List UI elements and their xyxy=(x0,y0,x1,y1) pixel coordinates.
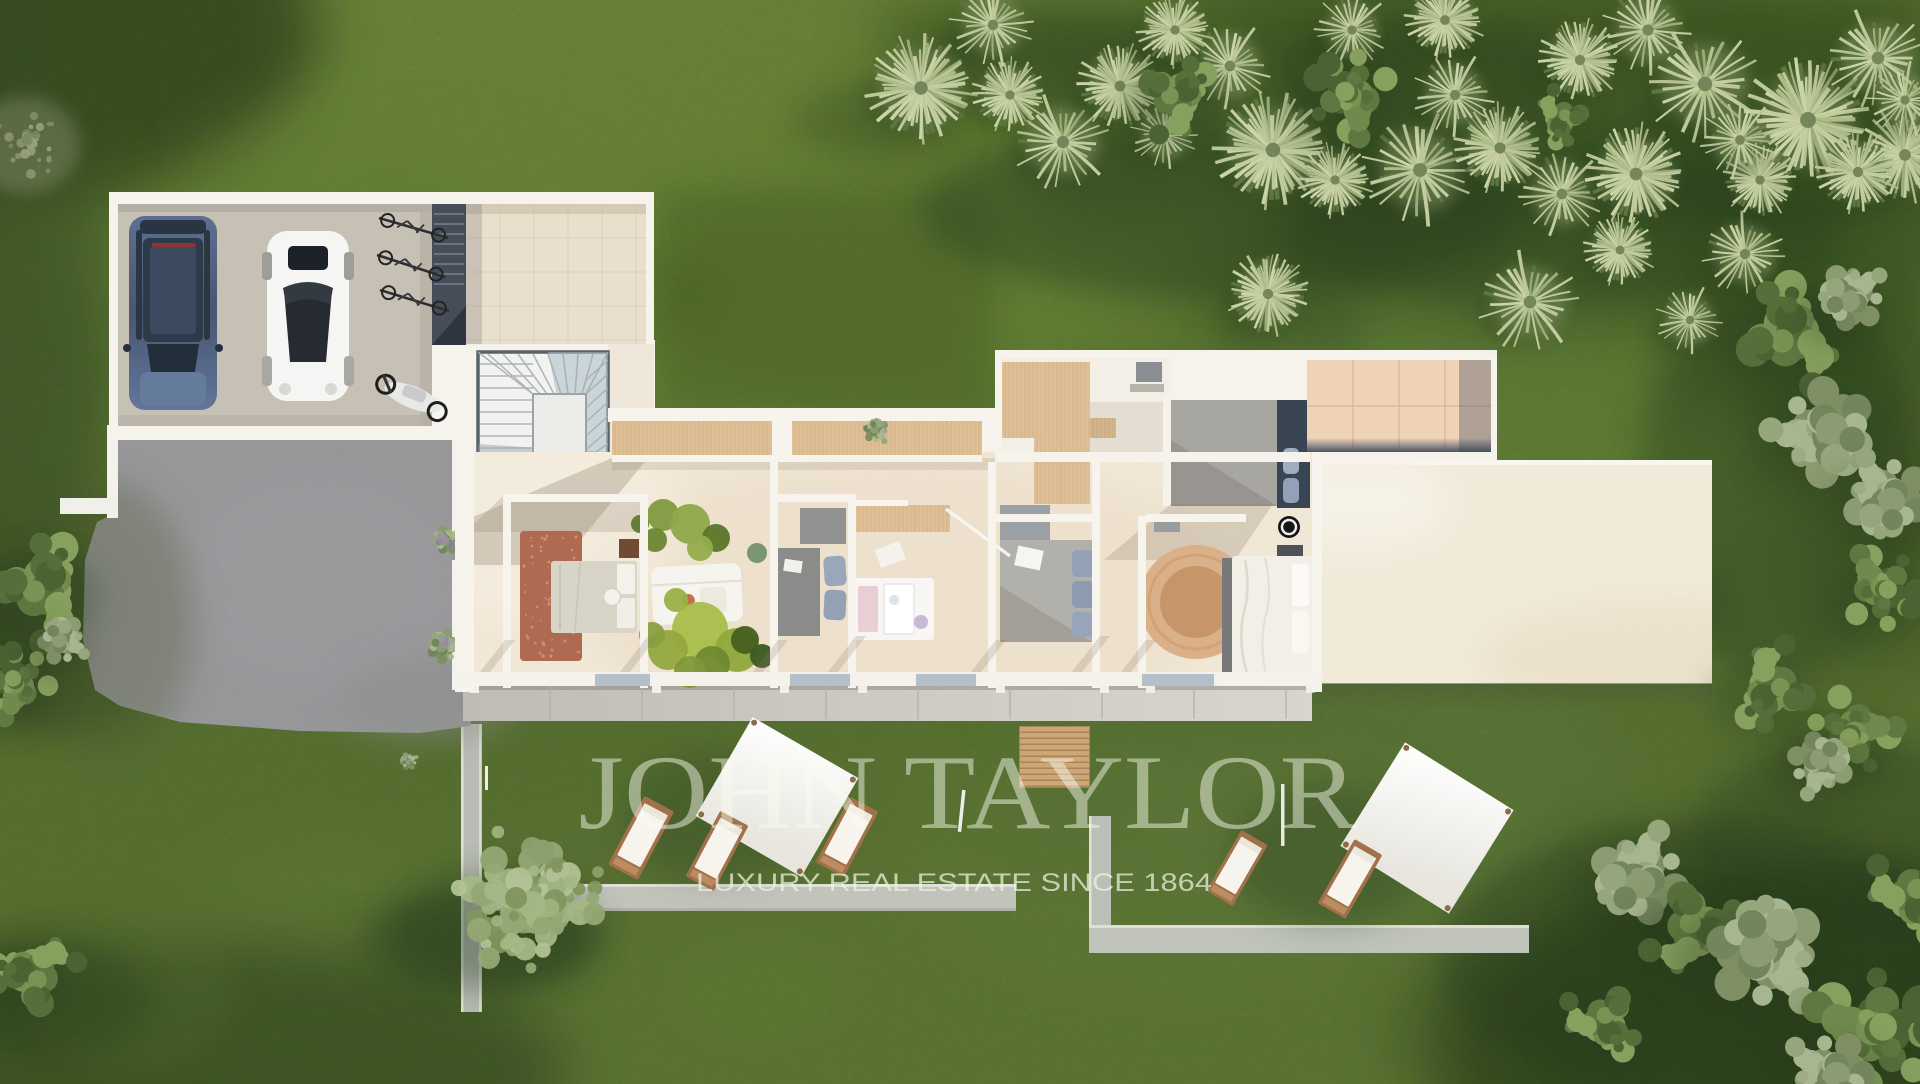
svg-text:JOHN TAYLOR: JOHN TAYLOR xyxy=(579,734,1358,851)
svg-text:LUXURY REAL ESTATE SINCE 1864: LUXURY REAL ESTATE SINCE 1864 xyxy=(696,869,1212,897)
